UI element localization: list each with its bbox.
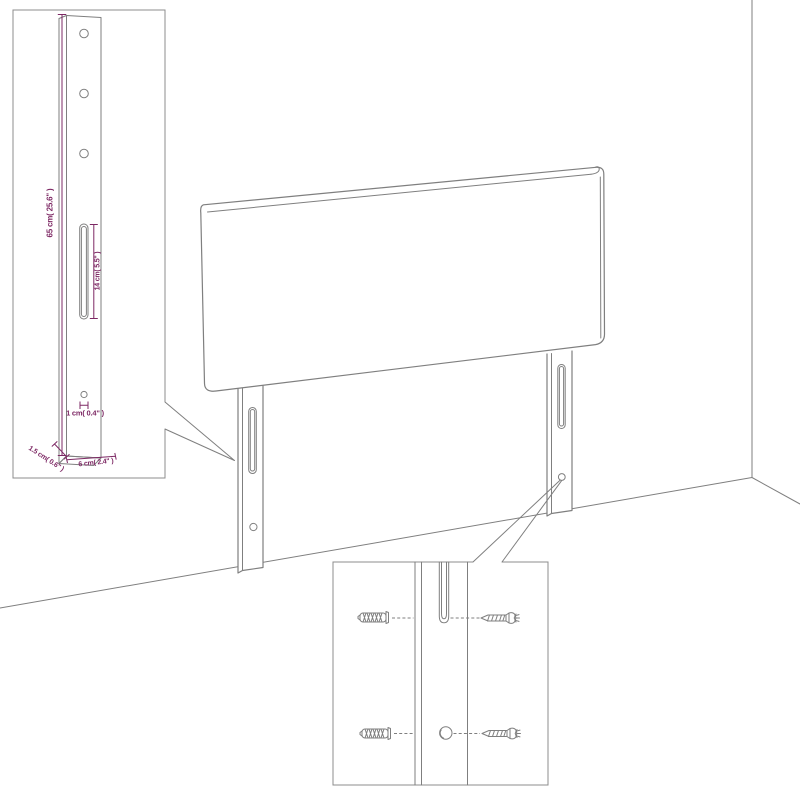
wall-floor-junction-line [0,478,752,609]
post-drawing [59,16,101,466]
dimension-lines [52,15,116,464]
hardware-inset-border [333,562,548,785]
post-hole-middle [80,89,89,98]
post-hole-bottom [80,149,89,158]
screw-icon [482,728,521,739]
wall-plug-icon [358,612,389,624]
post-small-hole [81,391,87,397]
strip-slot [439,562,448,623]
panel-right-edge-inner-line [600,177,601,338]
dim-label-slot-height: 14 cm( 5.5" ) [95,252,102,291]
headboard-assembly-diagram: 65 cm( 25.6" ) 14 cm( 5.5" ) 1 cm( 0.4" … [0,0,800,800]
diagram-line-art [0,0,800,800]
headboard-panel [201,167,605,391]
dim-label-hole-offset: 1 cm( 0.4" ) [66,409,104,418]
alignment-dashed-lines [392,618,480,734]
wall-plug-icon [360,728,391,740]
hardware-detail-inset [333,480,562,785]
panel-front-face [201,167,605,391]
screw-icon [481,613,520,624]
dim-label-height: 65 cm( 25.6" ) [46,188,55,237]
headboard-left-leg [238,386,263,573]
post-inset-callout-wedge [165,402,235,461]
headboard-right-leg [547,351,572,516]
strip-hole [440,727,452,739]
floor-right-line [752,478,800,505]
post-hole-top [80,29,89,38]
leg-strip-drawing [415,562,468,785]
